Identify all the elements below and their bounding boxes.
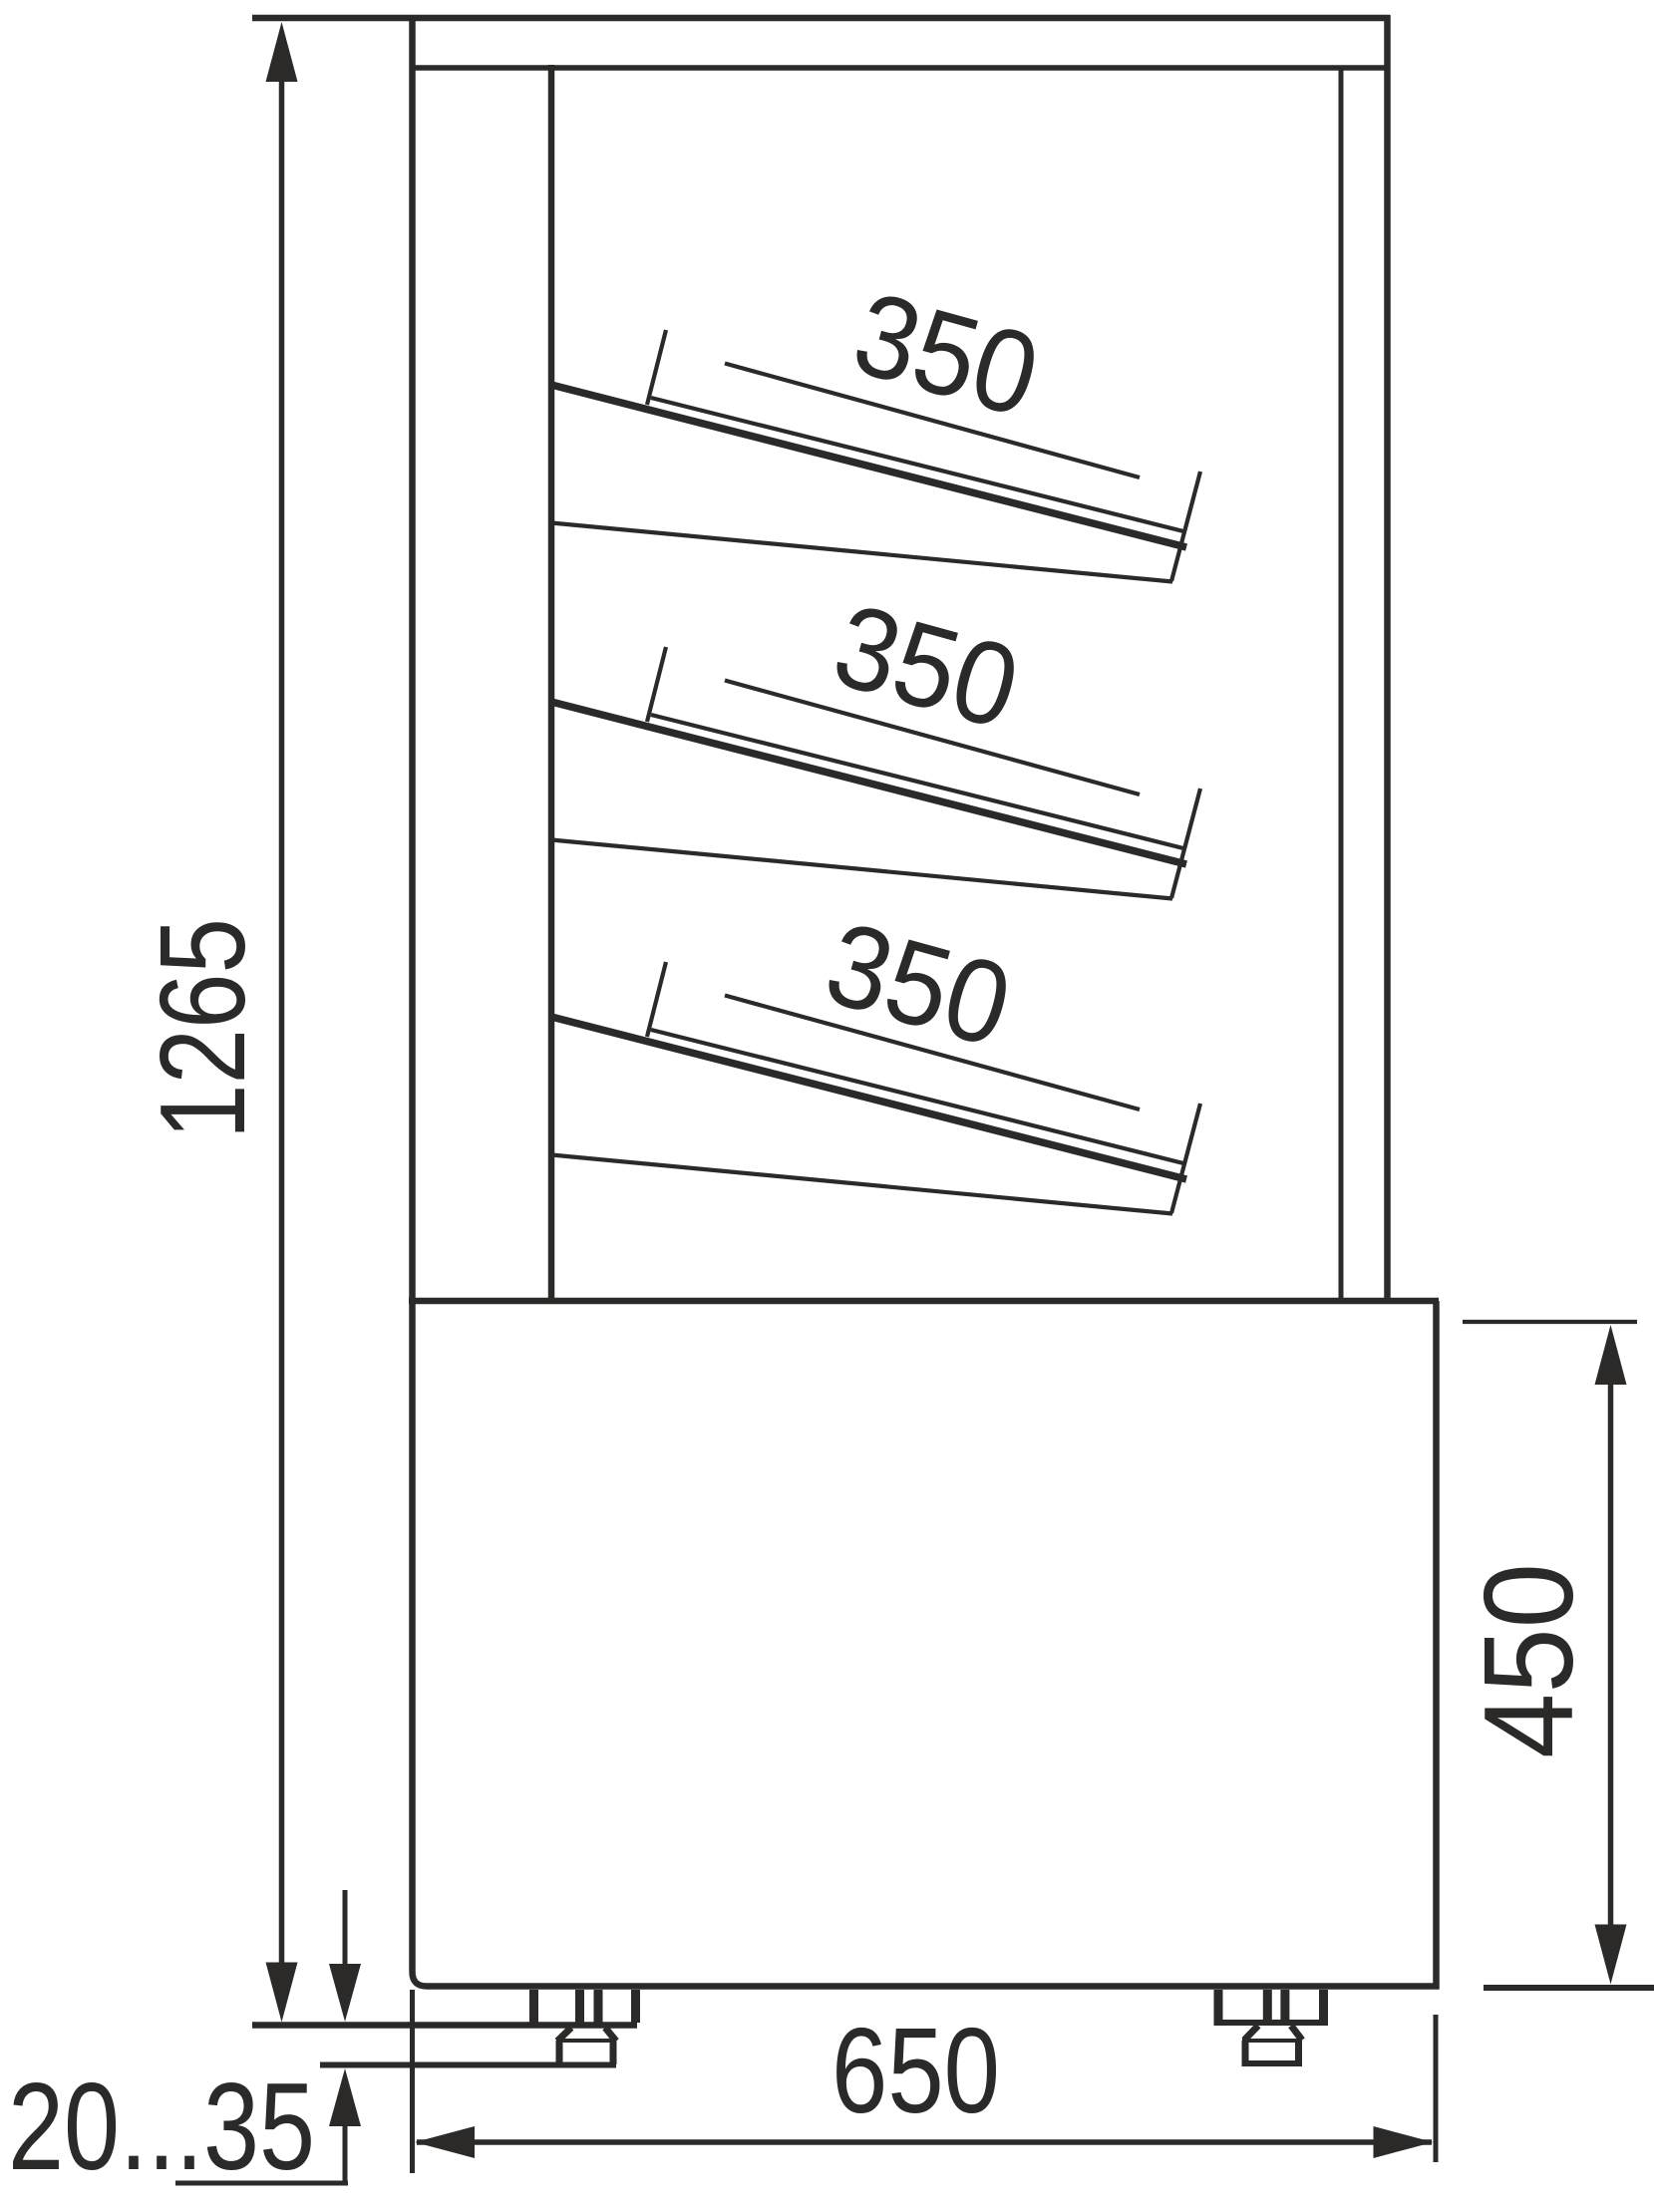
svg-text:350: 350 (813, 897, 1024, 1073)
svg-text:1265: 1265 (135, 918, 270, 1139)
svg-text:450: 450 (1458, 1563, 1599, 1758)
svg-text:350: 350 (840, 267, 1052, 443)
svg-text:20...35: 20...35 (8, 2058, 315, 2196)
svg-text:650: 650 (831, 2003, 1000, 2138)
svg-text:350: 350 (821, 579, 1032, 755)
